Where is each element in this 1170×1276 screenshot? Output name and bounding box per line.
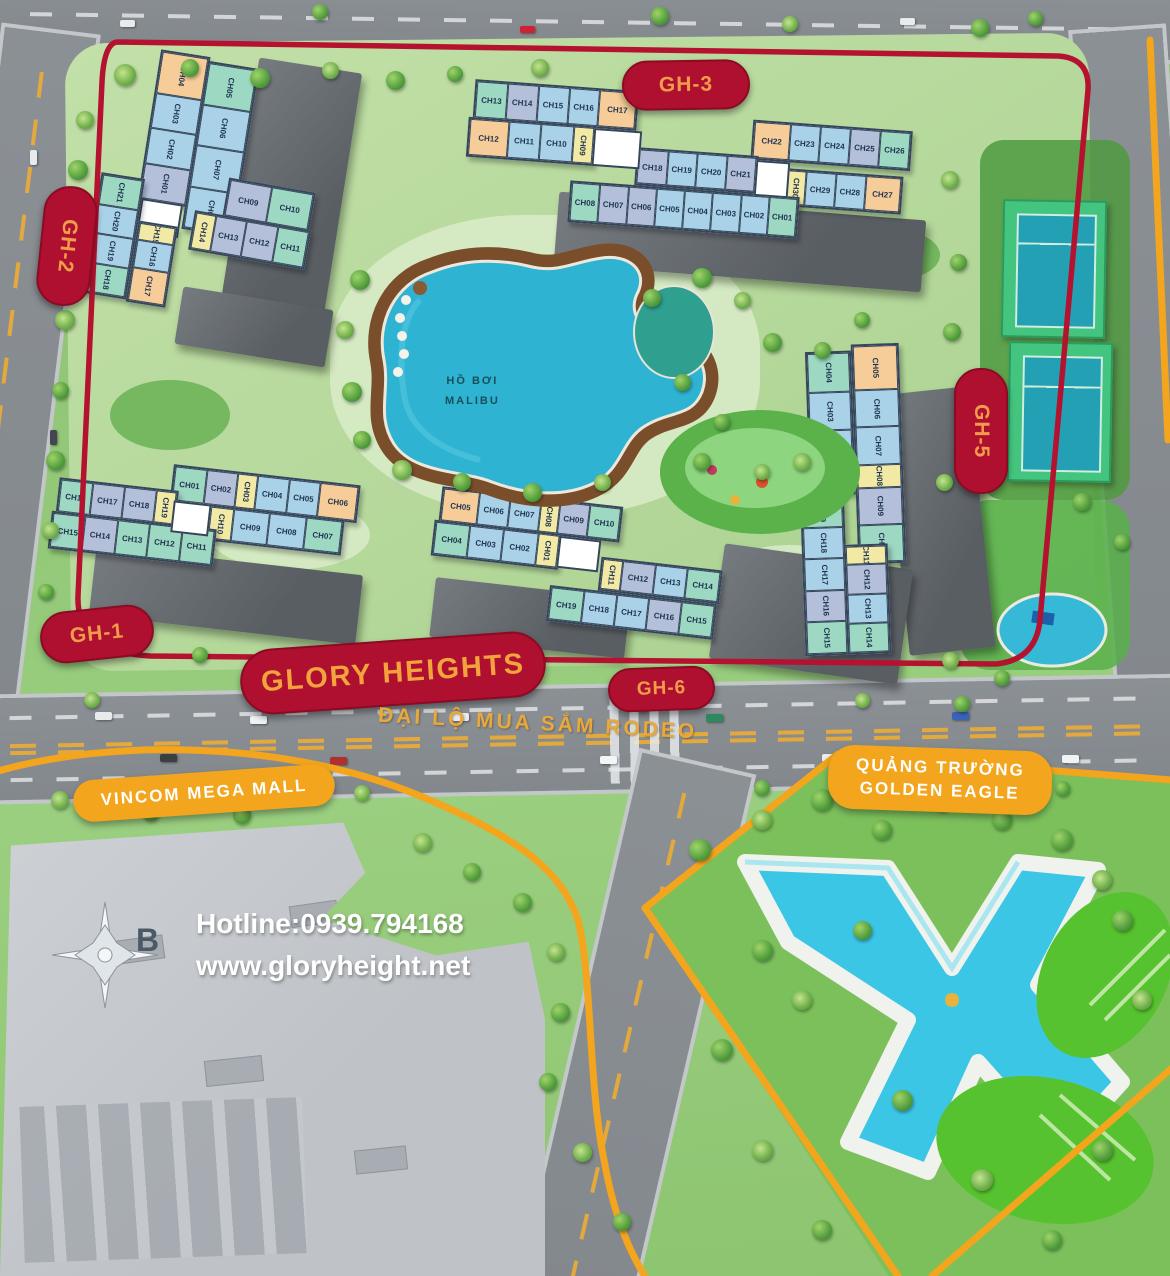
car — [952, 712, 969, 720]
tree — [793, 453, 811, 471]
gh5-top-col1: CH04CH03CH02CH01 — [805, 351, 856, 497]
car — [50, 430, 57, 445]
unit-ch04[interactable]: CH04 — [254, 476, 289, 513]
unit-ch08[interactable]: CH08 — [569, 182, 600, 222]
tree — [342, 382, 362, 402]
tree — [693, 453, 711, 471]
unit-ch07[interactable]: CH07 — [303, 517, 343, 553]
tree — [1051, 829, 1073, 851]
tree — [38, 584, 54, 600]
tree — [1092, 1140, 1113, 1161]
unit-ch18[interactable]: CH18 — [636, 149, 668, 185]
unit-ch05[interactable]: CH05 — [441, 488, 481, 524]
unit-ch08[interactable]: CH08 — [266, 513, 306, 549]
tree — [936, 474, 953, 491]
tennis-court-1 — [1001, 199, 1107, 339]
unit-ch17[interactable]: CH17 — [90, 483, 125, 518]
tree — [1092, 870, 1112, 890]
tree — [754, 464, 770, 480]
car — [160, 754, 177, 762]
unit-ch15[interactable]: CH15 — [536, 86, 569, 124]
unit-ch21[interactable]: CH21 — [725, 156, 757, 192]
tree — [350, 270, 370, 290]
tree — [1042, 1230, 1062, 1250]
tree — [1132, 990, 1152, 1010]
tree — [551, 1003, 570, 1022]
unit-ch01[interactable]: CH01 — [767, 197, 798, 237]
unit-ch12[interactable]: CH12 — [620, 561, 656, 594]
unit-ch16[interactable]: CH16 — [646, 598, 682, 634]
tree — [573, 1143, 592, 1162]
tree — [971, 19, 989, 37]
unit-ch02[interactable]: CH02 — [501, 530, 539, 566]
unit-ch09[interactable]: CH09 — [571, 126, 594, 163]
unit-ch18[interactable]: CH18 — [581, 591, 617, 627]
zone-badge-gh3: GH-3 — [622, 59, 751, 111]
tree — [763, 333, 782, 352]
tree — [55, 310, 75, 330]
unit-ch17[interactable]: CH17 — [804, 558, 845, 591]
unit-ch09[interactable]: CH09 — [557, 502, 591, 537]
car — [95, 712, 112, 720]
tree — [941, 171, 959, 189]
unit-ch04[interactable]: CH04 — [807, 353, 850, 393]
tree — [84, 692, 100, 708]
tree — [692, 268, 712, 288]
tennis-court-2 — [1007, 341, 1113, 483]
unit-ch13[interactable]: CH13 — [847, 593, 888, 624]
unit-ch05[interactable]: CH05 — [853, 345, 899, 391]
tree — [855, 693, 870, 708]
tree — [674, 374, 691, 391]
golden-eagle-label: QUẢNG TRƯỜNG GOLDEN EAGLE — [827, 744, 1053, 816]
unit-ch17[interactable]: CH17 — [613, 595, 649, 631]
unit-ch16[interactable]: CH16 — [567, 88, 600, 126]
tree — [250, 68, 270, 88]
unit-ch16[interactable]: CH16 — [58, 480, 93, 515]
tree — [413, 833, 432, 852]
unit-ch05[interactable]: CH05 — [654, 189, 685, 229]
mall-parking-rows — [19, 1097, 308, 1263]
compass-north-letter: B — [136, 922, 159, 959]
tree — [76, 111, 94, 129]
tree — [854, 312, 870, 328]
tree — [689, 839, 711, 861]
unit-ch02[interactable]: CH02 — [738, 195, 769, 235]
car — [706, 714, 723, 722]
unit-ch14[interactable]: CH14 — [848, 622, 889, 653]
tree — [792, 990, 812, 1010]
vincom-mega-mall-building — [0, 818, 545, 1276]
unit-ch27[interactable]: CH27 — [864, 176, 902, 213]
tree — [892, 1090, 913, 1111]
site-plan-map: CH04CH03CH02CH01 CH05CH06CH07CH08 CH21CH… — [0, 0, 1170, 1276]
tree — [950, 254, 967, 271]
unit-ch25[interactable]: CH25 — [848, 129, 881, 167]
unit-ch06[interactable]: CH06 — [626, 187, 657, 227]
tree — [453, 473, 471, 491]
gh5-bot-col1: CH19CH18CH17CH16CH15 — [800, 493, 850, 656]
unit-ch04[interactable]: CH04 — [682, 191, 713, 231]
unit-ch02[interactable]: CH02 — [203, 470, 238, 507]
tree — [643, 289, 661, 307]
unit-ch28[interactable]: CH28 — [834, 174, 866, 210]
tree — [114, 64, 136, 86]
unit-ch19[interactable]: CH19 — [802, 495, 843, 528]
unit-ch12[interactable]: CH12 — [846, 564, 887, 595]
car — [1062, 755, 1079, 763]
unit-ch07[interactable]: CH07 — [598, 185, 629, 225]
car — [900, 18, 915, 25]
tree — [68, 160, 88, 180]
unit-ch18[interactable]: CH18 — [803, 527, 844, 560]
unit-ch23[interactable]: CH23 — [788, 124, 821, 162]
tree — [353, 431, 371, 449]
tree — [714, 414, 730, 430]
unit-ch26[interactable]: CH26 — [878, 131, 911, 169]
unit-ch22[interactable]: CH22 — [753, 122, 791, 161]
unit-ch17[interactable]: CH17 — [128, 267, 169, 305]
car — [330, 757, 347, 765]
unit-ch12[interactable]: CH12 — [468, 119, 509, 158]
unit-ch02[interactable]: CH02 — [810, 430, 853, 470]
unit-ch08[interactable]: CH08 — [857, 463, 902, 488]
tree — [539, 1073, 557, 1091]
tree — [354, 785, 370, 801]
unit-ch13[interactable]: CH13 — [114, 520, 150, 557]
unit-ch14[interactable]: CH14 — [685, 569, 721, 602]
unit-ch03[interactable]: CH03 — [467, 526, 505, 562]
unit-ch13[interactable]: CH13 — [652, 565, 688, 598]
tree — [971, 1169, 993, 1191]
unit-ch11[interactable]: CH11 — [272, 227, 309, 268]
unit-ch03[interactable]: CH03 — [808, 391, 851, 431]
tree — [613, 1213, 631, 1231]
car — [30, 150, 37, 165]
unit-ch05[interactable]: CH05 — [203, 63, 257, 111]
tree — [734, 292, 751, 309]
gh3-row2-left: CH12CH11CH10CH09 — [466, 117, 597, 166]
tree — [651, 7, 669, 25]
tree — [523, 483, 542, 502]
tree — [463, 863, 481, 881]
tree — [336, 321, 354, 339]
unit-ch15[interactable]: CH15 — [806, 621, 847, 654]
car — [520, 26, 535, 33]
tree — [1028, 11, 1043, 26]
unit-ch18[interactable]: CH18 — [121, 487, 156, 522]
tree — [994, 670, 1010, 686]
tree — [943, 323, 961, 341]
tree — [782, 16, 798, 32]
tree — [46, 451, 65, 470]
tree — [192, 647, 208, 663]
unit-ch11[interactable]: CH11 — [506, 122, 541, 160]
tree — [1112, 910, 1133, 931]
tree — [547, 943, 565, 961]
tree — [386, 71, 405, 90]
zone-badge-gh6: GH-6 — [607, 665, 715, 713]
unit-ch06[interactable]: CH06 — [477, 493, 511, 528]
tree — [447, 66, 463, 82]
tree — [322, 62, 339, 79]
unit-ch29[interactable]: CH29 — [804, 172, 836, 208]
unit-ch11[interactable]: CH11 — [846, 545, 887, 565]
tree — [531, 59, 549, 77]
hotline-text: Hotline:0939.794168 — [196, 908, 464, 940]
unit-ch04[interactable]: CH04 — [433, 522, 471, 558]
unit-ch09[interactable]: CH09 — [230, 509, 270, 545]
gh5-top-col2: CH05CH06CH07CH08CH09CH10 — [851, 343, 907, 565]
tree — [872, 820, 892, 840]
unit-ch24[interactable]: CH24 — [818, 127, 851, 165]
tree — [594, 474, 611, 491]
tree — [392, 460, 412, 480]
tree — [752, 810, 772, 830]
unit-ch10[interactable]: CH10 — [539, 124, 574, 162]
unit-ch13[interactable]: CH13 — [475, 81, 508, 119]
unit-ch16[interactable]: CH16 — [805, 590, 846, 623]
tree — [942, 652, 959, 669]
unit-ch07[interactable]: CH07 — [507, 496, 541, 531]
unit-ch19[interactable]: CH19 — [548, 587, 584, 623]
car — [120, 20, 135, 27]
tree — [1114, 534, 1130, 550]
tree — [1055, 781, 1070, 796]
malibu-pool-label: HỒ BƠI MALIBU — [445, 372, 500, 412]
unit-ch19[interactable]: CH19 — [666, 151, 698, 187]
tree — [51, 791, 69, 809]
unit-ch06[interactable]: CH06 — [854, 389, 899, 428]
tree — [312, 4, 328, 20]
tree — [814, 342, 831, 359]
unit-ch04[interactable]: CH04 — [156, 52, 208, 101]
car — [250, 716, 267, 724]
website-text: www.gloryheight.net — [196, 950, 470, 982]
unit-ch01[interactable]: CH01 — [811, 469, 854, 494]
unit-ch10[interactable]: CH10 — [587, 505, 621, 540]
unit-ch06[interactable]: CH06 — [317, 483, 358, 521]
car — [600, 756, 617, 764]
tree — [752, 1140, 773, 1161]
unit-ch09[interactable]: CH09 — [858, 487, 903, 526]
unit-ch05[interactable]: CH05 — [286, 479, 321, 516]
tree — [954, 696, 970, 712]
unit-ch14[interactable]: CH14 — [82, 517, 118, 554]
tree — [513, 893, 532, 912]
zone-badge-gh5: GH-5 — [954, 368, 1008, 494]
gh3-row2-right: CH30CH29CH28CH27 — [783, 168, 903, 215]
unit-ch14[interactable]: CH14 — [506, 84, 539, 122]
tree — [752, 940, 773, 961]
unit-ch06[interactable]: CH06 — [197, 104, 251, 152]
tree — [42, 522, 59, 539]
tree — [181, 59, 199, 77]
unit-ch03[interactable]: CH03 — [710, 193, 741, 233]
tree — [853, 921, 872, 940]
unit-ch07[interactable]: CH07 — [856, 426, 901, 465]
unit-ch20[interactable]: CH20 — [695, 154, 727, 190]
tree — [1073, 493, 1091, 511]
tree — [52, 382, 69, 399]
tree — [711, 1039, 733, 1061]
tree — [754, 780, 770, 796]
gh5-bot-col2: CH11CH12CH13CH14 — [844, 543, 892, 654]
gh5-building: CH04CH03CH02CH01 CH05CH06CH07CH08CH09CH1… — [793, 342, 946, 653]
unit-ch15[interactable]: CH15 — [678, 602, 714, 638]
tree — [812, 1220, 832, 1240]
